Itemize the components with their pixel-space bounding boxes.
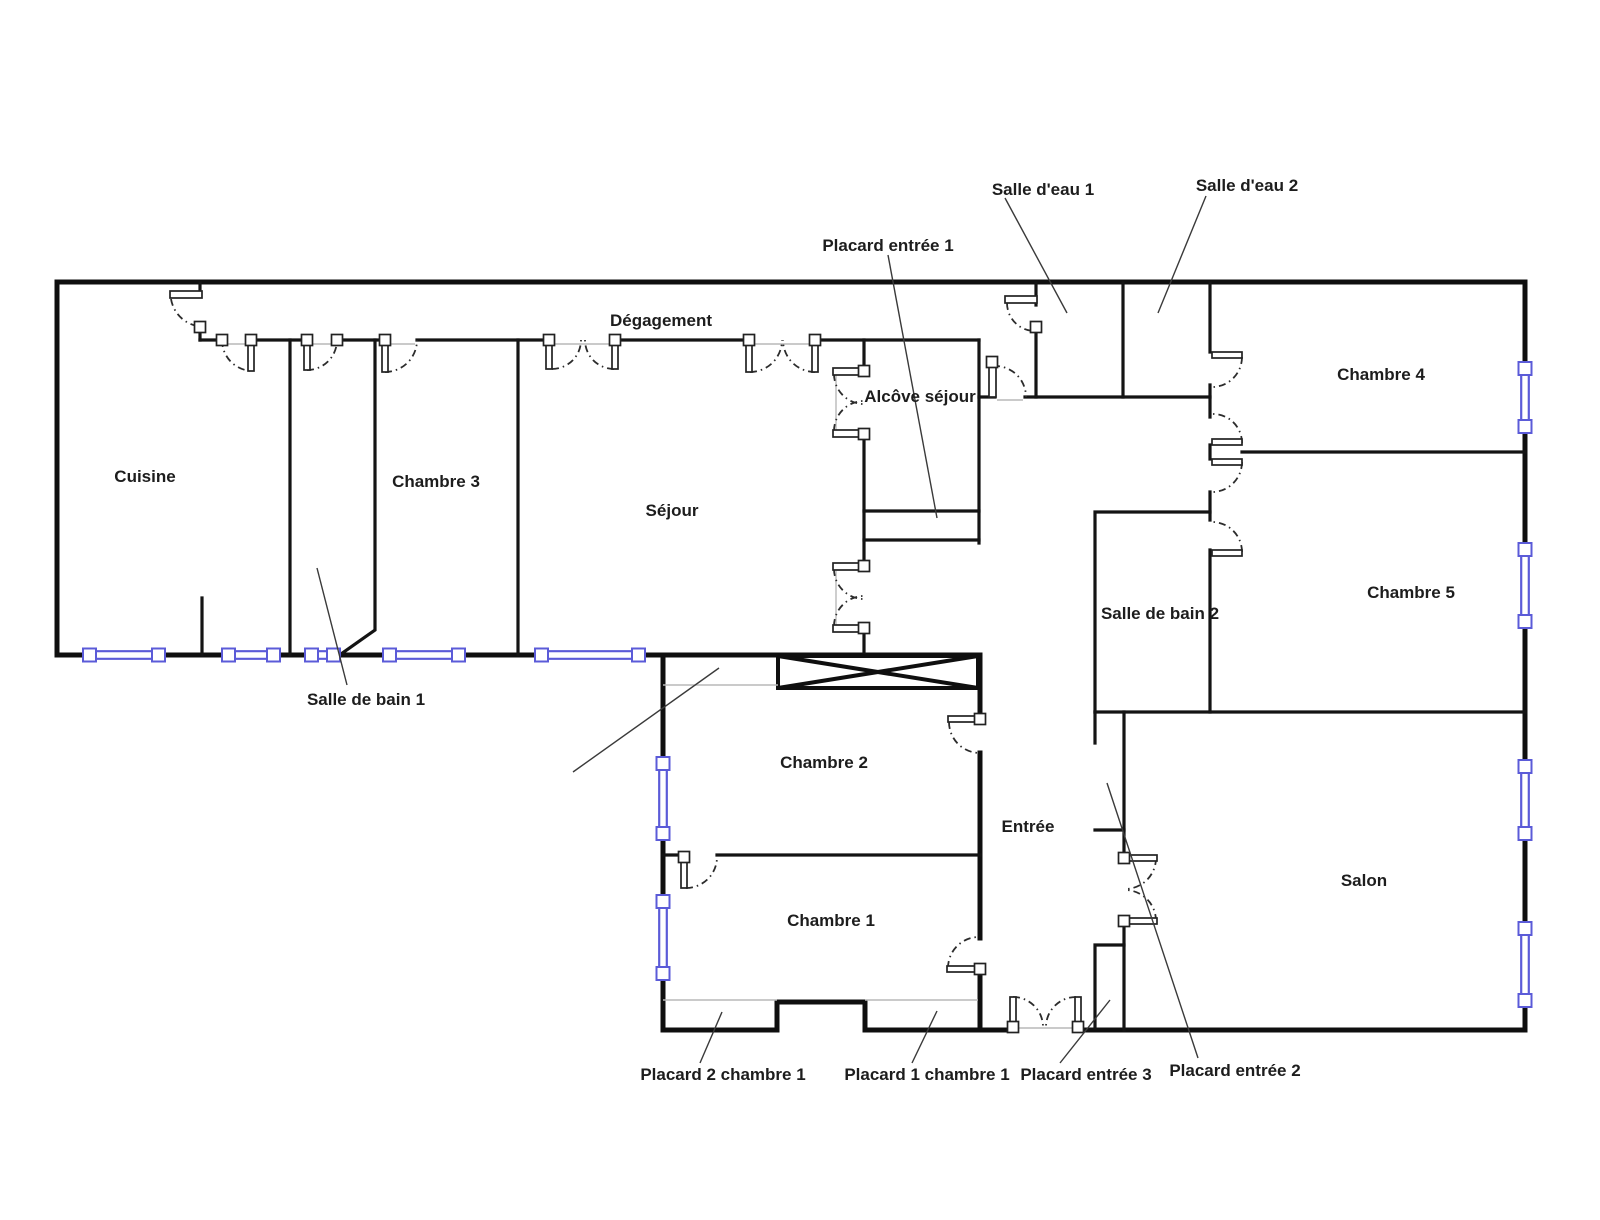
room-label-chambre-1: Chambre 1 bbox=[787, 911, 875, 930]
window-chambre-2 bbox=[657, 757, 670, 840]
leader-placard-2-chambre-1 bbox=[700, 1012, 722, 1063]
room-label-chambre-3: Chambre 3 bbox=[392, 472, 480, 491]
floor-plan-svg: Cuisine Chambre 3 Séjour Dégagement Alcô… bbox=[0, 0, 1600, 1220]
window-salon-2 bbox=[1519, 922, 1532, 1007]
window-chambre-4 bbox=[1519, 362, 1532, 433]
room-label-salle-d-eau-1: Salle d'eau 1 bbox=[992, 180, 1094, 199]
window-chambre-1 bbox=[657, 895, 670, 980]
leader-placard-1-chambre-1 bbox=[912, 1011, 937, 1063]
room-label-salle-de-bain-2: Salle de bain 2 bbox=[1101, 604, 1219, 623]
floor-plan-page: Cuisine Chambre 3 Séjour Dégagement Alcô… bbox=[0, 0, 1600, 1220]
window-cuisine-2 bbox=[222, 649, 280, 662]
room-label-sejour: Séjour bbox=[646, 501, 699, 520]
leader-chambre-2-closet bbox=[573, 668, 719, 772]
room-label-alcove-sejour: Alcôve séjour bbox=[864, 387, 976, 406]
leader-salle-d-eau-2 bbox=[1158, 196, 1206, 313]
room-labels: Cuisine Chambre 3 Séjour Dégagement Alcô… bbox=[114, 176, 1455, 930]
room-label-chambre-5: Chambre 5 bbox=[1367, 583, 1455, 602]
window-salle-de-bain-1 bbox=[305, 649, 340, 662]
callout-label-placard-entree-3: Placard entrée 3 bbox=[1020, 1065, 1151, 1084]
room-label-entree: Entrée bbox=[1002, 817, 1055, 836]
room-label-cuisine: Cuisine bbox=[114, 467, 175, 486]
window-sejour bbox=[535, 649, 645, 662]
room-label-salon: Salon bbox=[1341, 871, 1387, 890]
callout-label-salle-de-bain-1: Salle de bain 1 bbox=[307, 690, 425, 709]
window-cuisine-1 bbox=[83, 649, 165, 662]
crossed-duct-box bbox=[778, 656, 978, 688]
room-label-degagement: Dégagement bbox=[610, 311, 712, 330]
callout-label-placard-entree-2: Placard entrée 2 bbox=[1169, 1061, 1300, 1080]
callout-label-placard-entree-1: Placard entrée 1 bbox=[822, 236, 953, 255]
door-arcs bbox=[171, 299, 1242, 1027]
window-chambre-5 bbox=[1519, 543, 1532, 628]
callout-label-placard-2-chambre-1: Placard 2 chambre 1 bbox=[640, 1065, 805, 1084]
leader-lines bbox=[317, 196, 1206, 1063]
room-label-chambre-4: Chambre 4 bbox=[1337, 365, 1425, 384]
callout-label-placard-1-chambre-1: Placard 1 chambre 1 bbox=[844, 1065, 1009, 1084]
window-chambre-3 bbox=[383, 649, 465, 662]
leader-salle-de-bain-1 bbox=[317, 568, 347, 685]
room-label-chambre-2: Chambre 2 bbox=[780, 753, 868, 772]
window-salon-1 bbox=[1519, 760, 1532, 840]
room-label-salle-d-eau-2: Salle d'eau 2 bbox=[1196, 176, 1298, 195]
